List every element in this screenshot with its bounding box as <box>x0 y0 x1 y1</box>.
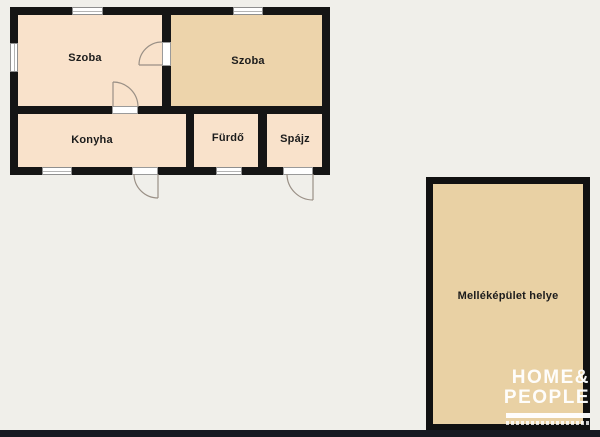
watermark-line1: HOME& <box>495 368 590 388</box>
watermark-tagline <box>506 421 590 425</box>
door-opening-szoba1-konyha <box>112 106 138 114</box>
window-left-szoba1 <box>10 43 18 72</box>
window-bottom-konyha <box>42 167 72 175</box>
door-swing-spajz-entrance <box>287 174 313 200</box>
room-label-furdo: Fürdő <box>212 132 244 144</box>
room-label-konyha: Konyha <box>71 134 113 146</box>
room-label-szoba2: Szoba <box>231 55 264 67</box>
room-label-szoba1: Szoba <box>68 52 101 64</box>
wall-outer-left <box>10 7 18 175</box>
door-opening-konyha-entrance <box>132 167 158 175</box>
door-opening-szoba1-szoba2 <box>162 42 171 66</box>
wall-outer-right <box>322 7 330 175</box>
room-label-outbuilding: Melléképület helye <box>458 290 559 302</box>
footer-strip <box>0 430 600 437</box>
watermark-logo: HOME& PEOPLE <box>495 368 590 408</box>
wall-outer-top <box>10 7 330 15</box>
wall-partition-furdo-spajz <box>258 114 267 167</box>
room-label-spajz: Spájz <box>280 133 310 145</box>
watermark-line2: PEOPLE <box>495 388 590 408</box>
watermark-underline-bar <box>506 413 590 418</box>
door-swing-konyha-entrance <box>134 174 158 198</box>
wall-partition-horizontal <box>18 106 322 114</box>
wall-partition-konyha-furdo <box>186 114 194 167</box>
floor-plan-canvas: Szoba Szoba Konyha Fürdő Spájz Melléképü… <box>0 0 600 437</box>
door-opening-spajz-entrance <box>283 167 313 175</box>
window-bottom-furdo <box>216 167 242 175</box>
window-top-szoba2 <box>233 7 263 15</box>
window-top-szoba1 <box>72 7 103 15</box>
